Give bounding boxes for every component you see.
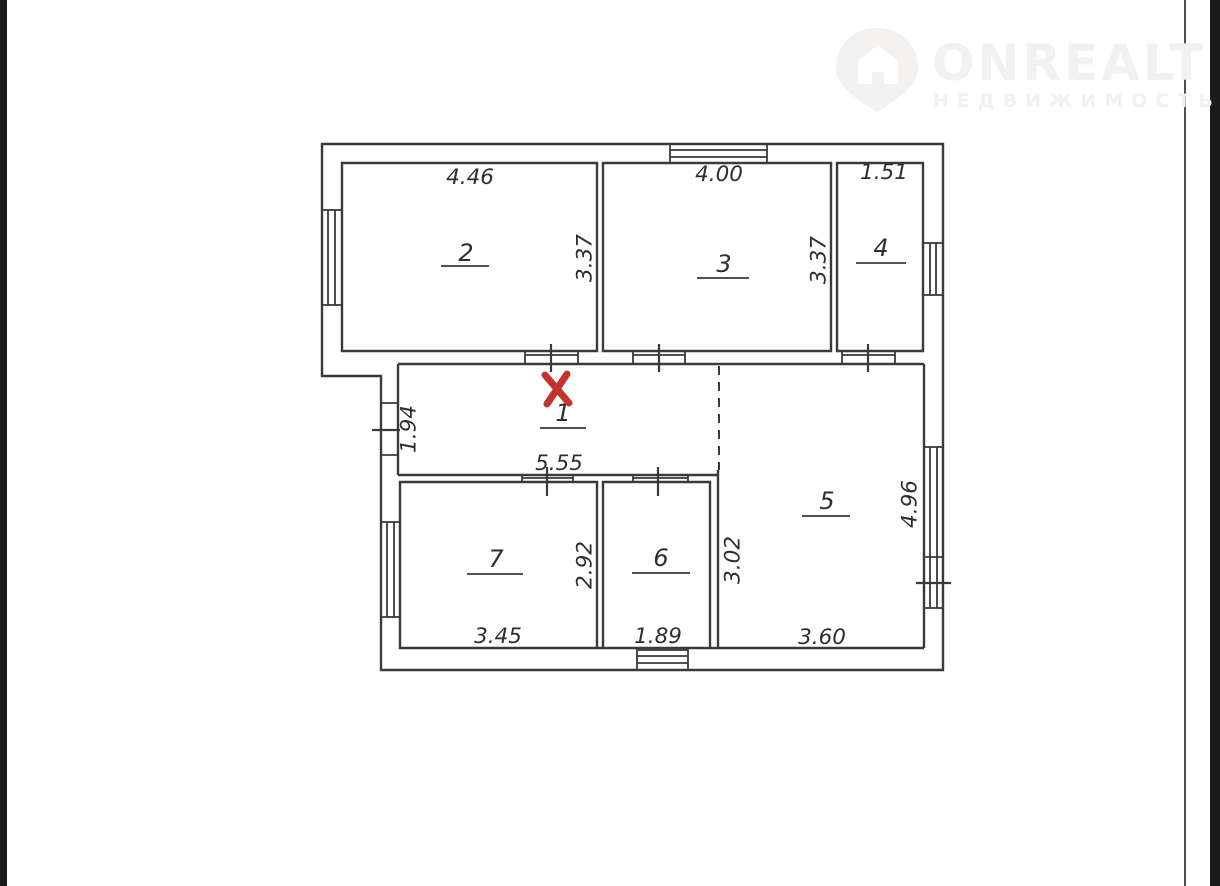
door-openings (381, 351, 895, 482)
room-1-label: 1 (555, 399, 570, 427)
room-5-label: 5 (819, 487, 834, 515)
window-right-room4-icon (923, 243, 943, 295)
dim-room1-width: 5.55 (535, 451, 583, 476)
page: ONREALT НЕДВИЖИМОСТЬ (0, 0, 1220, 886)
room-4-label: 4 (873, 234, 888, 262)
room-2-label: 2 (458, 239, 473, 267)
house-location-pin-icon (836, 28, 918, 112)
window-top-room3-icon (670, 144, 767, 163)
dim-entrance-height: 1.94 (397, 405, 422, 453)
room-6-label: 6 (653, 544, 668, 572)
brand-logo: ONREALT НЕДВИЖИМОСТЬ (836, 28, 1220, 112)
room-7-label: 7 (488, 545, 504, 573)
window-left-room7-icon (381, 522, 400, 617)
dim-room4-width: 1.51 (860, 160, 908, 185)
dim-room7-width: 3.45 (474, 624, 522, 649)
dim-room3-height: 3.37 (807, 236, 832, 284)
room-3-label: 3 (716, 250, 731, 278)
dim-room5-left-height: 3.02 (721, 536, 746, 584)
dim-room3-width: 4.00 (695, 162, 743, 187)
dim-room6-width: 1.89 (634, 624, 682, 649)
dim-room2-width: 4.46 (446, 165, 494, 190)
dim-room5-width: 3.60 (798, 625, 846, 650)
window-left-room2-icon (322, 210, 342, 305)
onrealt-wordmark: ONREALT (932, 34, 1206, 92)
window-bottom-room6-icon (637, 650, 688, 670)
dim-room5-height: 4.96 (898, 480, 923, 528)
dim-room7-height: 2.92 (573, 541, 598, 589)
floor-plan: ONREALT НЕДВИЖИМОСТЬ (0, 0, 1220, 886)
logo-subtitle: НЕДВИЖИМОСТЬ (933, 90, 1220, 112)
dim-room2-height: 3.37 (573, 234, 598, 282)
